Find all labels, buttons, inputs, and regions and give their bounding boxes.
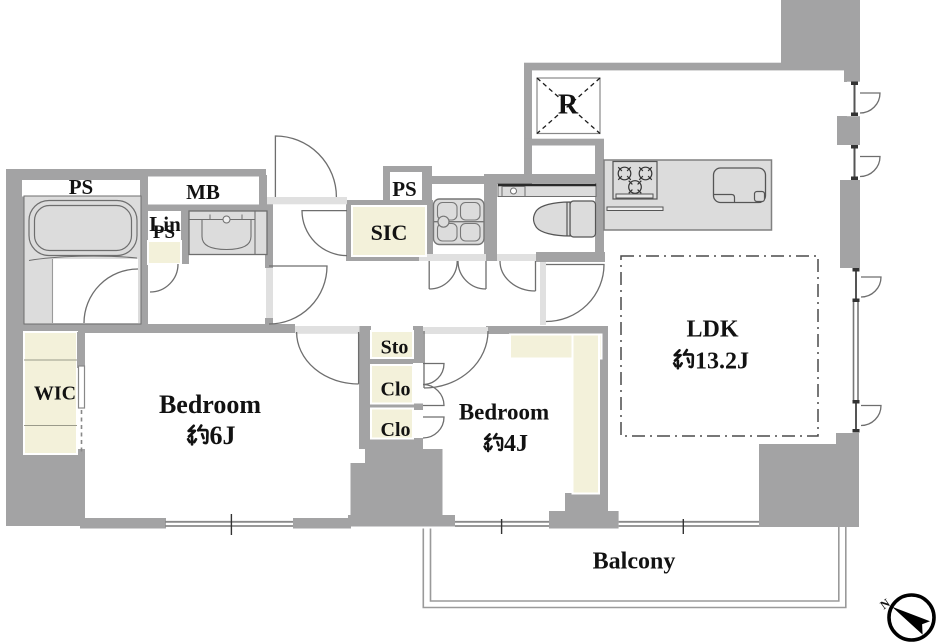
svg-text:13.2J: 13.2J	[695, 349, 749, 375]
svg-text:Balcony: Balcony	[593, 549, 676, 575]
svg-text:WIC: WIC	[34, 383, 76, 405]
svg-text:Bedroom: Bedroom	[159, 390, 261, 419]
svg-text:6J: 6J	[210, 421, 236, 450]
svg-text:LDK: LDK	[686, 317, 738, 343]
svg-text:MB: MB	[186, 180, 220, 204]
svg-text:SIC: SIC	[371, 220, 408, 245]
svg-text:Clo: Clo	[381, 419, 411, 441]
svg-text:R: R	[558, 90, 579, 121]
svg-text:4J: 4J	[504, 431, 528, 457]
svg-text:PS: PS	[69, 175, 94, 199]
svg-text:Bedroom: Bedroom	[459, 400, 549, 425]
svg-text:PS: PS	[153, 222, 175, 243]
svg-text:Clo: Clo	[381, 379, 411, 401]
svg-text:PS: PS	[392, 177, 417, 201]
svg-text:Sto: Sto	[381, 337, 409, 359]
